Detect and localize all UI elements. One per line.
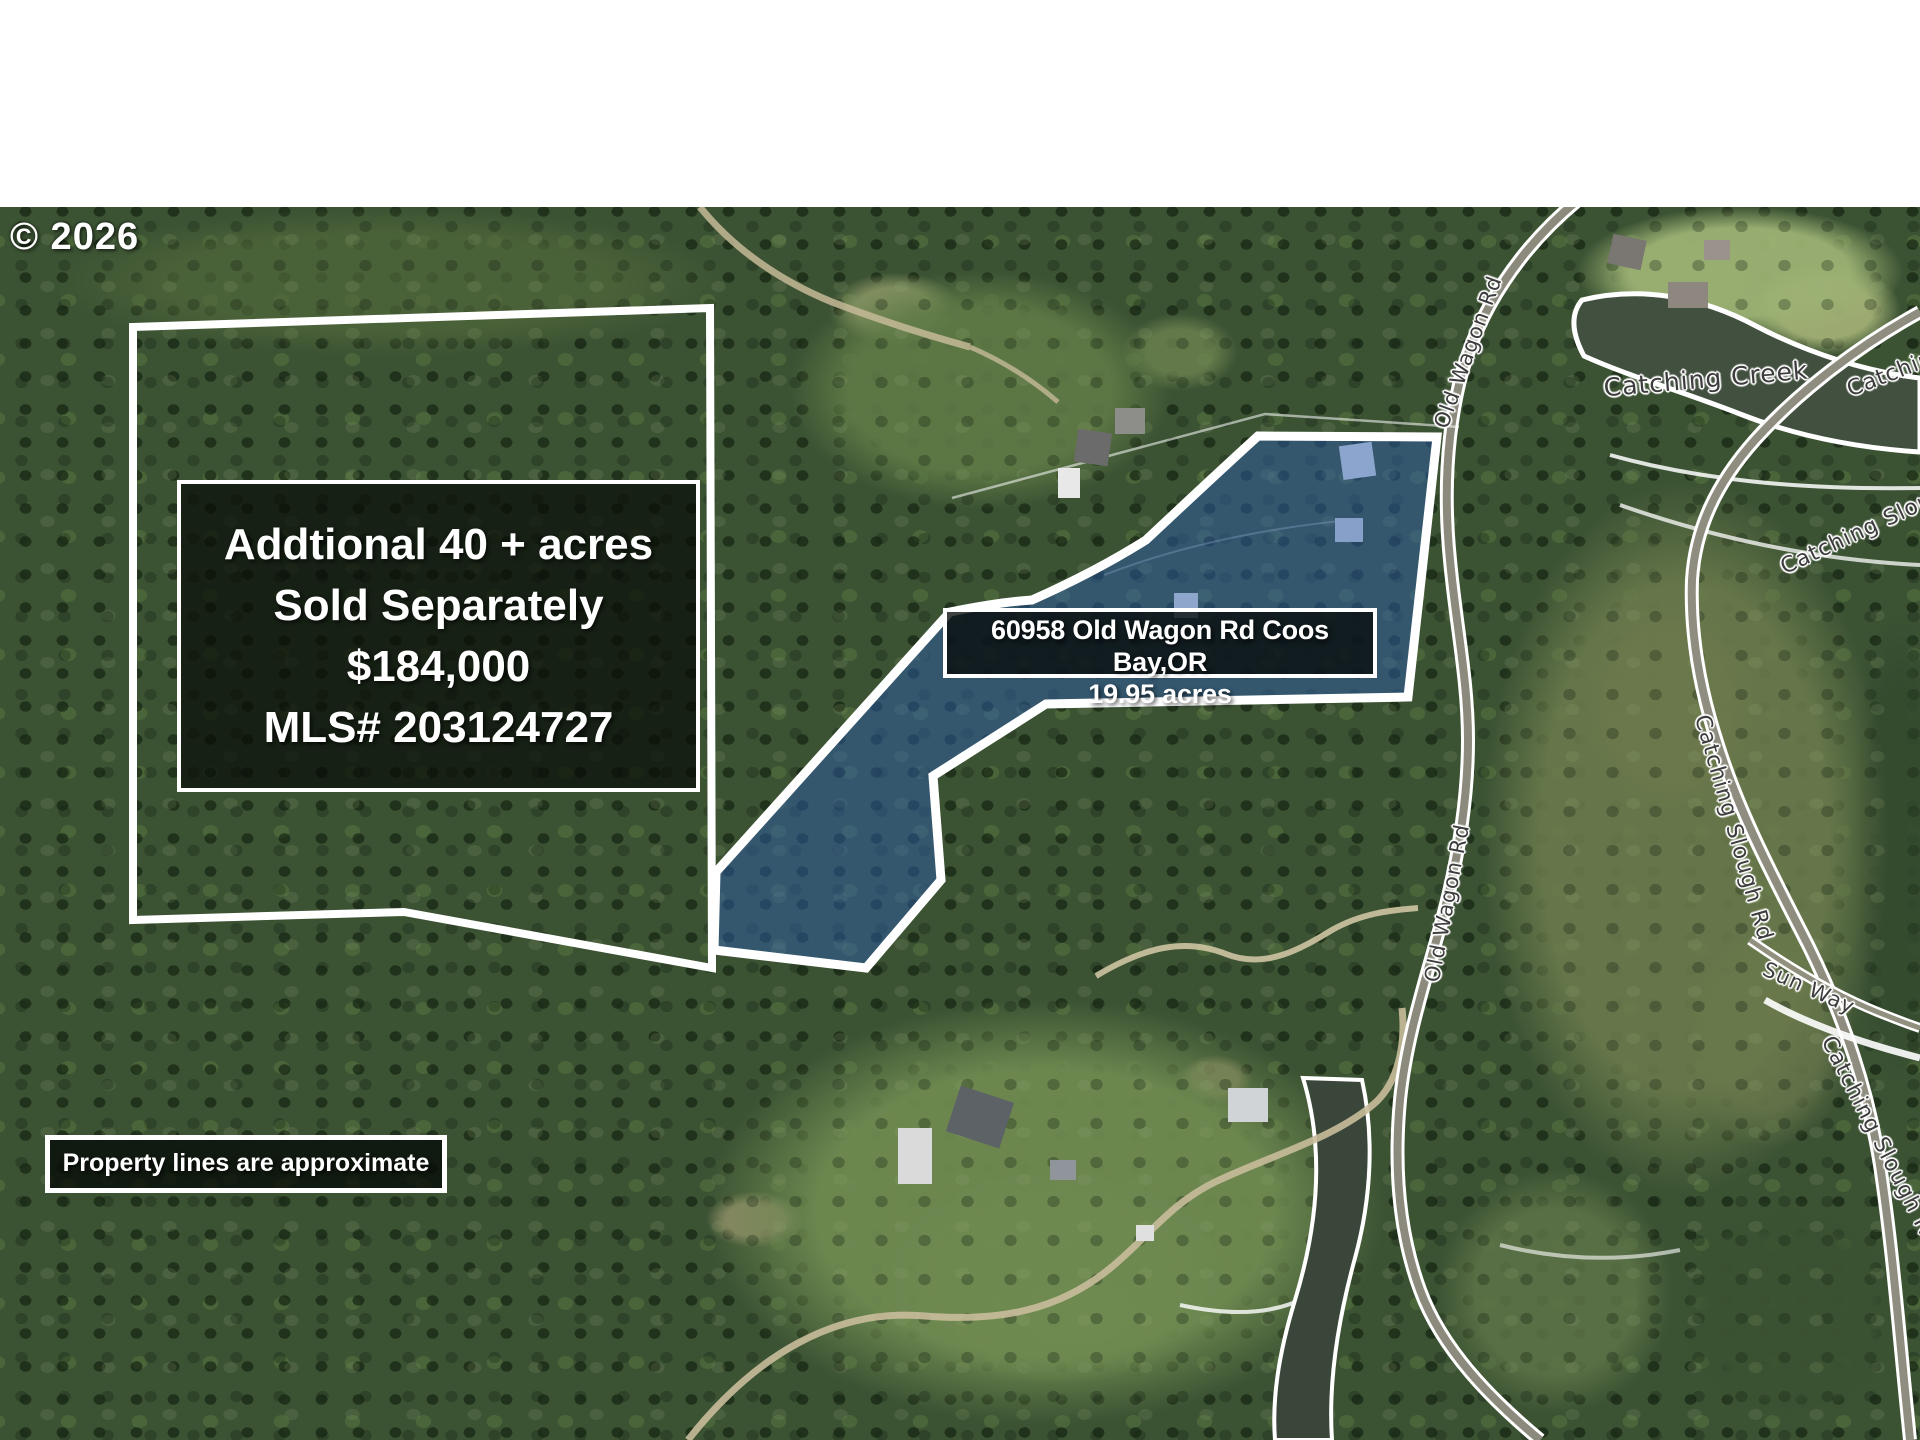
catching-slough-rd-surface — [1692, 312, 1920, 1440]
disclaimer-box: Property lines are approximate — [45, 1135, 447, 1193]
info-box-line1: Addtional 40 + acres — [181, 514, 696, 575]
parcel-address: 60958 Old Wagon Rd Coos Bay,OR — [947, 614, 1373, 678]
map-container: © 2026 Addtional 40 + acres Sold Separat… — [0, 0, 1920, 1440]
parcel-acreage: 19.95 acres — [947, 678, 1373, 710]
dirt-driveway — [970, 347, 1058, 402]
slough-channel-water — [1274, 1078, 1369, 1440]
info-box-mls-number: MLS# 203124727 — [181, 697, 696, 758]
marsh-channel-line — [1610, 455, 1920, 488]
marsh-channel-line — [1500, 1245, 1680, 1258]
highlighted-parcel-address-box: 60958 Old Wagon Rd Coos Bay,OR 19.95 acr… — [943, 608, 1377, 678]
copyright-text: © 2026 — [10, 216, 139, 259]
additional-acres-info-box: Addtional 40 + acres Sold Separately $18… — [177, 480, 700, 792]
info-box-line2: Sold Separately — [181, 575, 696, 636]
top-white-band — [0, 0, 1920, 207]
info-box-price: $184,000 — [181, 636, 696, 697]
dirt-driveway — [700, 207, 970, 347]
dirt-road — [1096, 908, 1418, 976]
